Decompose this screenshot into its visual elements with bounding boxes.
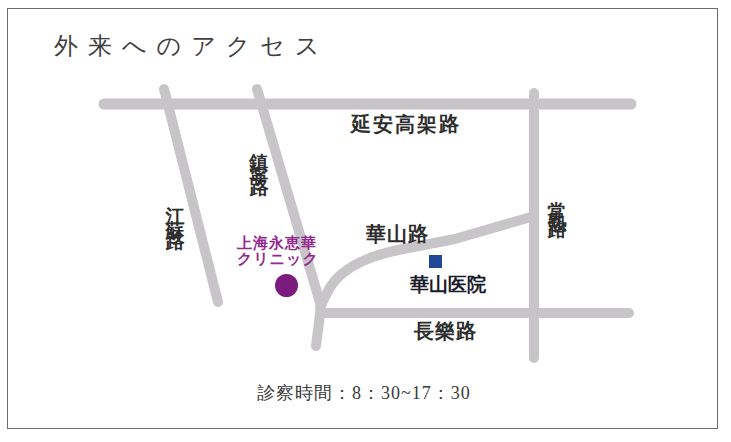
clinic-name-line1: 上海永恵華 xyxy=(237,235,319,251)
road-label-changle: 長樂路 xyxy=(414,318,477,345)
consultation-hours-text: 診察時間：8：30~17：30 xyxy=(257,381,471,405)
clinic-name-label: 上海永恵華 クリニック xyxy=(237,235,319,267)
road-label-changshu: 常熟路 xyxy=(544,186,570,213)
zhenning-road-line xyxy=(257,89,321,346)
clinic-marker-circle xyxy=(275,274,298,297)
road-label-yanan: 延安高架路 xyxy=(351,111,461,138)
road-label-jiangsu: 江蘇路 xyxy=(162,192,188,228)
clinic-name-line2: クリニック xyxy=(237,251,319,267)
hospital-marker-square xyxy=(429,255,442,268)
clinic-access-map-page: 外来へのアクセス 延安高架路 鎮寧路 江蘇路 常熟路 華山路 長樂路 上海永恵華… xyxy=(0,0,731,442)
road-label-huashan: 華山路 xyxy=(366,221,429,248)
road-label-zhenning: 鎮寧路 xyxy=(246,138,272,174)
hospital-name-label: 華山医院 xyxy=(410,272,486,298)
